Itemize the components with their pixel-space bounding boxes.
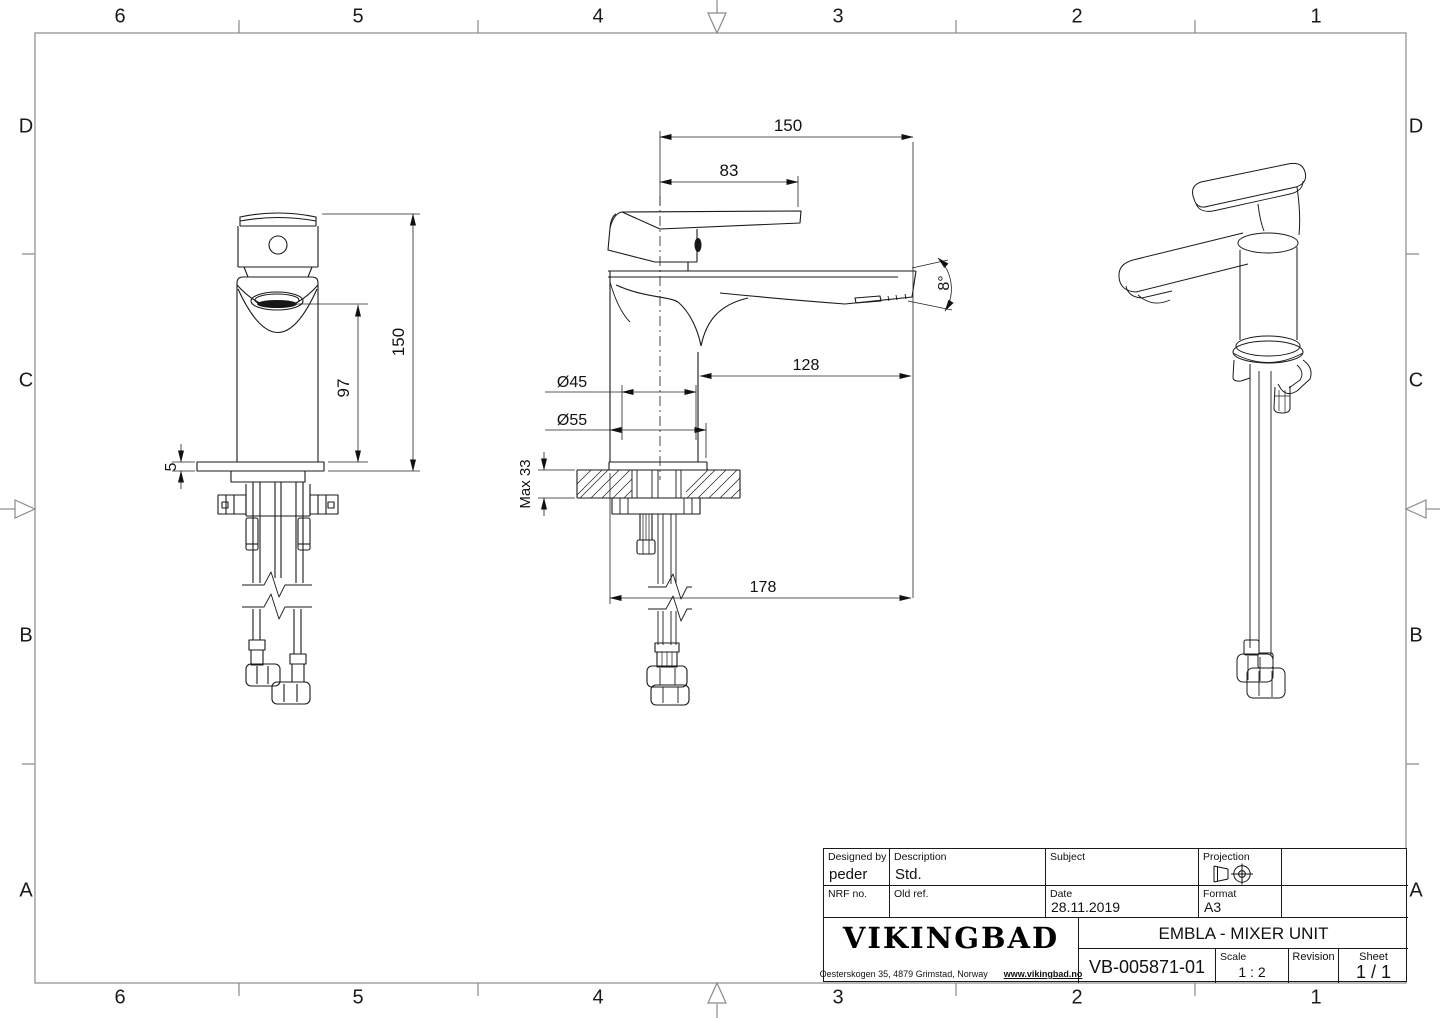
drawing-title-cell: EMBLA - MIXER UNIT [1079,918,1408,949]
zone-row-label: B [19,625,32,648]
dim-side-handle-length: 83 [720,161,739,180]
description-value: Std. [895,866,922,883]
designed-by-cell: Designed by peder [824,849,890,886]
description-label: Description [894,851,947,863]
dim-side-max-deck: Max 33 [517,459,534,508]
old-ref-label: Old ref. [894,888,928,900]
zone-col-label: 3 [832,6,843,29]
scale-value: 1 : 2 [1216,964,1288,980]
projection-cell: Projection [1199,849,1282,886]
dim-side-total-reach: 150 [774,116,802,135]
zone-col-label: 6 [114,987,125,1010]
dim-side-spout-reach: 128 [793,357,820,374]
zone-row-label: C [1409,370,1423,393]
dim-side-body-dia: Ø45 [557,374,587,391]
old-ref-cell: Old ref. [890,886,1046,918]
title-block: Designed by peder Description Std. Subje… [823,848,1407,982]
company-address: Oesterskogen 35, 4879 Grimstad, Norway [820,969,988,979]
zone-col-label: 4 [592,6,603,29]
front-view-dimensions [172,214,420,489]
format-value: A3 [1204,899,1221,915]
sheet-cell: Sheet 1 / 1 [1339,949,1408,983]
drawing-number: VB-005871-01 [1079,957,1215,978]
zone-row-label: A [19,880,32,903]
zone-col-label: 1 [1310,6,1321,29]
zone-col-label: 3 [832,987,843,1010]
designed-by-value: peder [829,866,867,883]
side-view-dimensions [538,131,952,604]
zone-col-label: 2 [1071,6,1082,29]
dim-front-base-plate: 5 [163,462,180,471]
nrf-label: NRF no. [828,888,867,900]
dim-front-total-height: 150 [389,328,408,356]
format-cell: Format A3 [1199,886,1282,918]
dim-side-spout-angle: 8° [936,275,953,290]
revision-cell: Revision [1289,949,1339,983]
zone-col-label: 5 [352,987,363,1010]
company-logo-cell: VIKINGBAD Oesterskogen 35, 4879 Grimstad… [824,918,1079,983]
drawing-sheet: { "sheet": { "zones": { "columns": ["6",… [0,0,1440,1018]
zone-row-label: B [1409,625,1422,648]
zone-col-label: 1 [1310,987,1321,1010]
zone-row-label: D [19,116,33,139]
vikingbad-logo: VIKINGBAD [824,921,1078,955]
zone-col-label: 2 [1071,987,1082,1010]
dim-side-base-dia: Ø55 [557,412,587,429]
scale-cell: Scale 1 : 2 [1216,949,1289,983]
drawing-title: EMBLA - MIXER UNIT [1079,924,1408,944]
designed-by-label: Designed by [828,851,886,863]
side-view [577,196,916,705]
first-angle-projection-icon [1211,863,1259,886]
zone-row-label: C [19,370,33,393]
zone-col-label: 6 [114,6,125,29]
zone-row-label: D [1409,116,1423,139]
front-view [197,213,338,704]
company-website: www.vikingbad.no [1004,969,1083,979]
isometric-view [1119,163,1311,698]
dim-front-aerator-height: 97 [334,379,353,398]
projection-label: Projection [1203,851,1250,863]
empty-cell [1282,886,1408,918]
subject-cell: Subject [1046,849,1199,886]
empty-cell [1282,849,1408,886]
description-cell: Description Std. [890,849,1046,886]
zone-row-label: A [1409,880,1422,903]
dim-side-hose-reach: 178 [750,579,777,596]
revision-label: Revision [1289,951,1338,963]
subject-label: Subject [1050,851,1085,863]
scale-label: Scale [1220,951,1246,963]
date-value: 28.11.2019 [1051,899,1120,915]
date-cell: Date 28.11.2019 [1046,886,1199,918]
nrf-cell: NRF no. [824,886,890,918]
zone-col-label: 5 [352,6,363,29]
zone-col-label: 4 [592,987,603,1010]
drawing-number-cell: VB-005871-01 [1079,949,1216,983]
sheet-value: 1 / 1 [1339,962,1408,983]
